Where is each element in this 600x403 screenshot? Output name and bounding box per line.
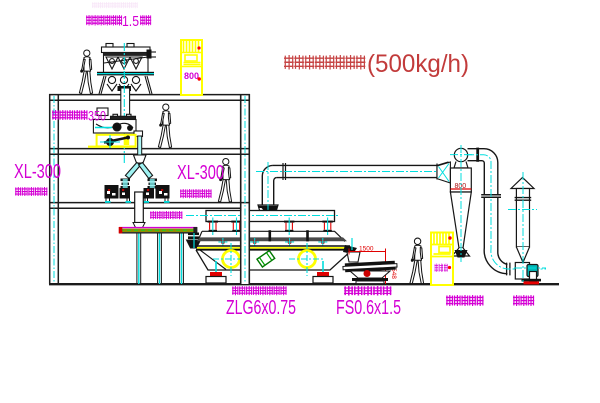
svg-text:800: 800 — [184, 71, 199, 81]
svg-text:350: 350 — [88, 109, 106, 124]
svg-text:(500kg/h): (500kg/h) — [367, 50, 469, 78]
svg-text:1500: 1500 — [359, 246, 374, 253]
svg-text:800: 800 — [455, 183, 467, 190]
svg-text:1.5: 1.5 — [122, 13, 139, 30]
svg-text:ZLG6x0.75: ZLG6x0.75 — [226, 297, 296, 319]
svg-text:XL-300: XL-300 — [14, 160, 61, 183]
svg-text:FS0.6x1.5: FS0.6x1.5 — [336, 297, 401, 319]
svg-text:XL-300: XL-300 — [177, 161, 224, 184]
